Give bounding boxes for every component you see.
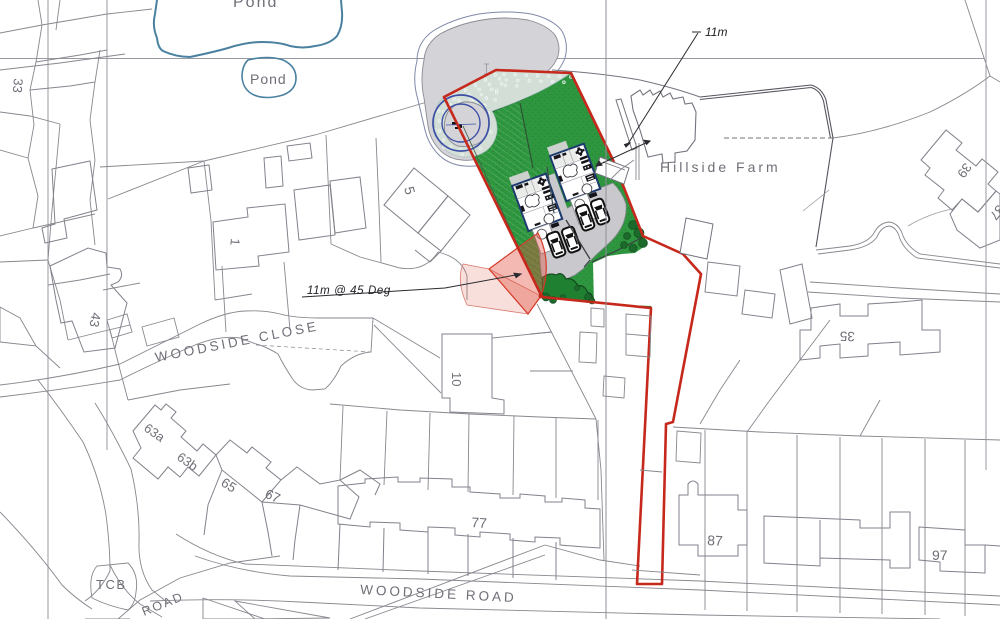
svg-text:11m: 11m [705, 25, 727, 39]
svg-text:1: 1 [227, 238, 243, 247]
svg-text:43: 43 [87, 311, 104, 328]
svg-text:87: 87 [707, 532, 724, 549]
svg-text:11m @ 45 Deg: 11m @ 45 Deg [307, 285, 391, 297]
svg-text:10: 10 [449, 372, 464, 386]
svg-text:97: 97 [932, 547, 948, 563]
svg-text:35: 35 [840, 328, 856, 344]
svg-text:TCB: TCB [96, 577, 127, 592]
svg-text:33: 33 [10, 78, 26, 94]
svg-text:Pond: Pond [233, 0, 278, 11]
svg-text:Pond: Pond [250, 71, 287, 87]
svg-text:77: 77 [471, 514, 488, 531]
svg-text:Hillside Farm: Hillside Farm [660, 159, 781, 175]
